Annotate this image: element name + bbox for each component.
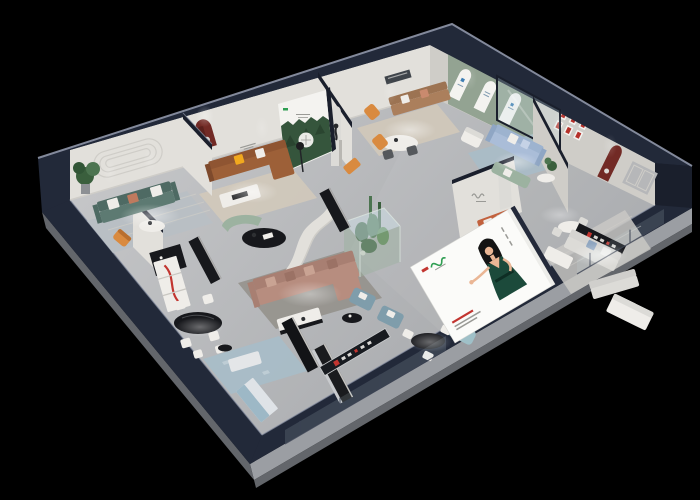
statue-figure [334, 124, 339, 129]
showroom-render [0, 0, 700, 500]
lightbox-logo [283, 108, 288, 111]
small-black-table [218, 345, 232, 352]
isometric-scene [0, 0, 700, 500]
black-side-table [342, 313, 362, 323]
round-side-table [537, 174, 555, 183]
